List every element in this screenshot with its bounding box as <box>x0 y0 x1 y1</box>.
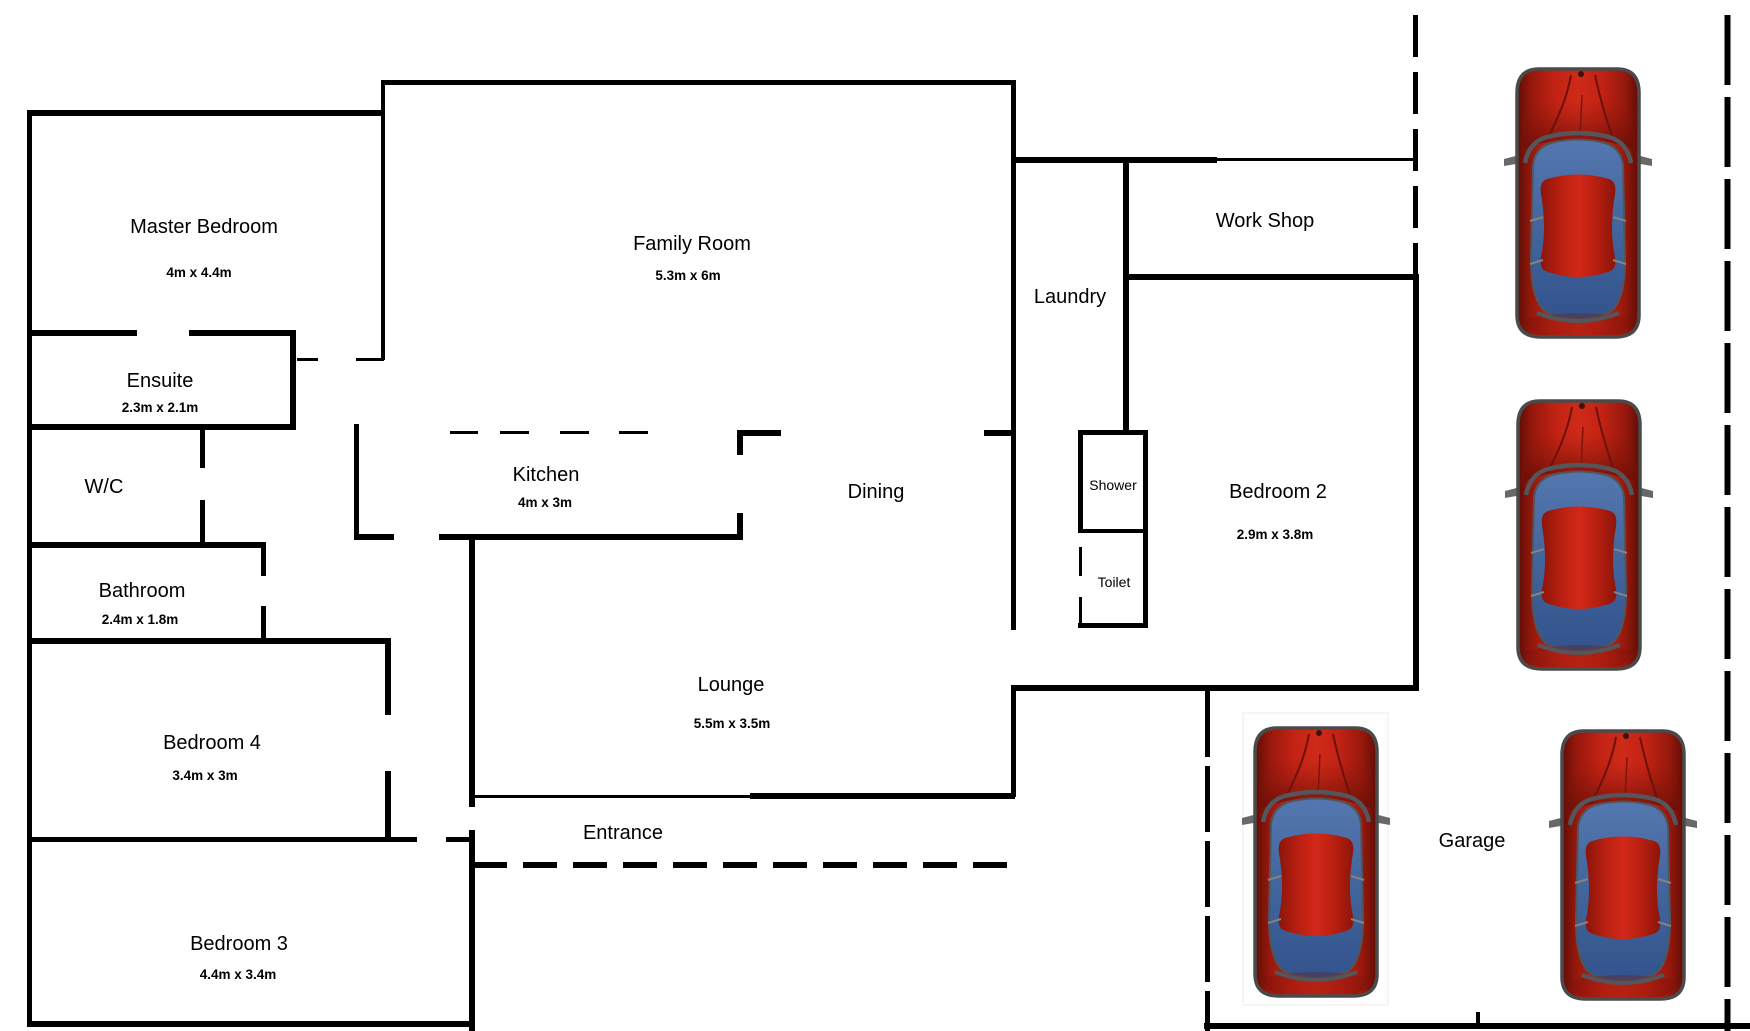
svg-text:2.9m x 3.8m: 2.9m x 3.8m <box>1237 527 1314 542</box>
svg-text:Kitchen: Kitchen <box>513 464 580 486</box>
svg-text:Family Room: Family Room <box>633 233 751 255</box>
svg-text:Master Bedroom: Master Bedroom <box>130 216 278 238</box>
svg-text:5.3m x 6m: 5.3m x 6m <box>655 268 720 283</box>
svg-text:3.4m x 3m: 3.4m x 3m <box>172 768 237 783</box>
svg-text:Bathroom: Bathroom <box>99 580 186 602</box>
svg-text:Work Shop: Work Shop <box>1216 210 1315 232</box>
svg-text:5.5m x 3.5m: 5.5m x 3.5m <box>694 716 771 731</box>
svg-text:W/C: W/C <box>85 476 124 498</box>
svg-text:4m x 3m: 4m x 3m <box>518 495 572 510</box>
svg-text:Ensuite: Ensuite <box>127 370 194 392</box>
svg-text:Lounge: Lounge <box>698 674 765 696</box>
svg-text:Bedroom 4: Bedroom 4 <box>163 732 261 754</box>
svg-text:4m x 4.4m: 4m x 4.4m <box>166 265 231 280</box>
svg-text:4.4m x 3.4m: 4.4m x 3.4m <box>200 967 277 982</box>
svg-text:Garage: Garage <box>1439 830 1506 852</box>
svg-text:Toilet: Toilet <box>1098 574 1131 590</box>
svg-text:Shower: Shower <box>1089 477 1137 493</box>
svg-text:Dining: Dining <box>848 481 905 503</box>
svg-text:Bedroom 2: Bedroom 2 <box>1229 481 1327 503</box>
svg-text:2.4m x 1.8m: 2.4m x 1.8m <box>102 612 179 627</box>
svg-text:Entrance: Entrance <box>583 822 663 844</box>
svg-text:Laundry: Laundry <box>1034 286 1106 308</box>
svg-text:Bedroom 3: Bedroom 3 <box>190 933 288 955</box>
svg-text:2.3m x 2.1m: 2.3m x 2.1m <box>122 400 199 415</box>
